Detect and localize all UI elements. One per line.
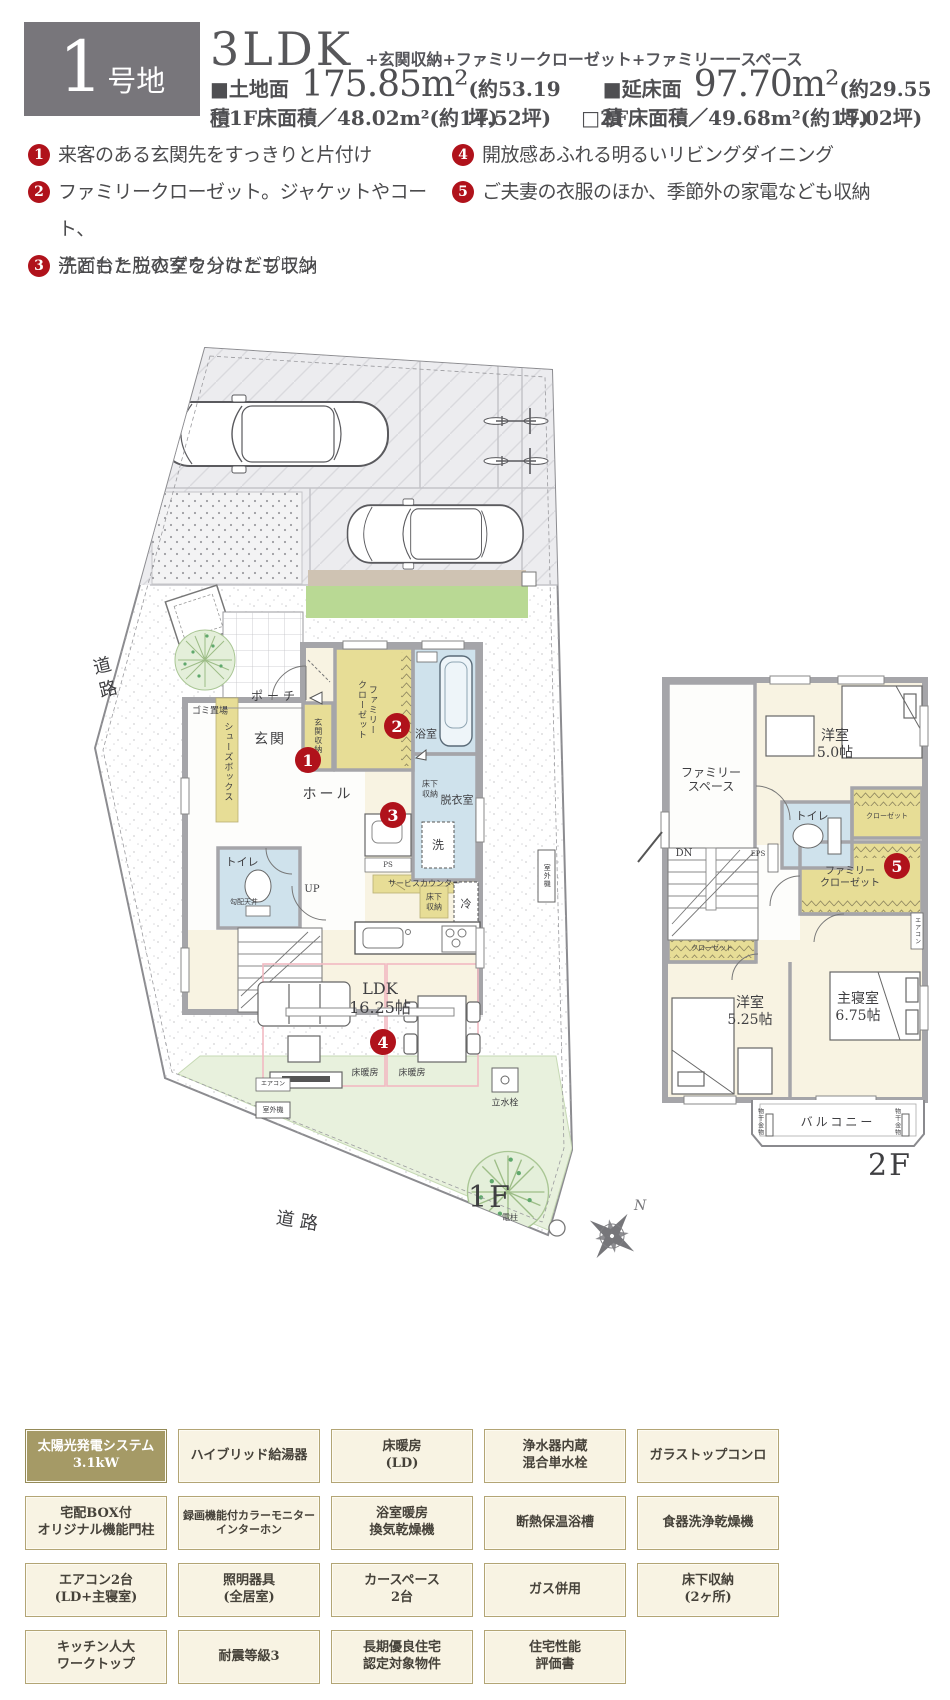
badge-floor-heating: 床暖房 (LD) <box>331 1429 473 1483</box>
feature-item-4: 4 開放感あふれる明るいリビングダイニング <box>452 137 950 174</box>
badge-dishwasher: 食器洗浄乾燥機 <box>637 1496 779 1550</box>
lot-suffix: 号地 <box>107 58 165 100</box>
label-sloped-ceiling: 勾配天井 <box>230 898 258 906</box>
lot-number: 1 <box>59 24 104 110</box>
label-family-closet-2f: ファミリー クローゼット <box>820 866 880 890</box>
label-family-space: ファミリー スペース <box>681 766 741 795</box>
floor-area-row: □1F床面積／48.02m²(約14.52坪) □2F床面積／49.68m²(約… <box>210 102 922 131</box>
side-table <box>288 1036 320 1062</box>
sofa <box>258 982 350 1026</box>
badge-delivery-box: 宅配BOX付 オリジナル機能門柱 <box>25 1496 167 1550</box>
lot-number-badge: 1 号地 <box>24 22 200 116</box>
label-floor-heating-2: 床暖房 <box>398 1069 425 1080</box>
plan-marker-1: 1 <box>295 747 321 773</box>
chair <box>404 1034 417 1054</box>
badge-lighting: 照明器具 (全居室) <box>178 1563 320 1617</box>
laundry-bracket <box>766 1114 773 1136</box>
equipment-badges: 太陽光発電システム 3.1kW ハイブリッド給湯器 床暖房 (LD) 浄水器内蔵… <box>25 1429 930 1684</box>
car-2 <box>348 499 524 569</box>
land-area-value: 175.85m² <box>301 64 468 105</box>
badge-glass-top-stove: ガラストップコンロ <box>637 1429 779 1483</box>
label-porch: ポーチ <box>251 689 299 703</box>
label-eps: EPS <box>751 850 766 858</box>
tree <box>175 630 235 690</box>
label-washer: 洗 <box>432 838 444 852</box>
label-fridge: 冷 <box>461 897 472 910</box>
feature-text-5: ご夫妻の衣服のほか、季節外の家電なども収納 <box>482 174 870 211</box>
badge-aircon-2units: エアコン2台 (LD+主寝室) <box>25 1563 167 1617</box>
feature-item-1: 1 来客のある玄関先をすっきりと片付け <box>28 137 448 174</box>
toilet-fixture-2f <box>793 824 823 848</box>
floor2-area: □2F床面積／49.68m²(約15.02坪) <box>581 102 922 131</box>
compass-north: N <box>633 1198 647 1214</box>
label-outdoor-unit-south: 室外機 <box>263 1106 284 1114</box>
floor-plan-1f: ポーチ ゴミ置場 玄関 シューズボックス 玄関収納 ファミリー クローゼット 浴… <box>60 330 580 1270</box>
feature-item-3: 3 洗面台と脱衣室を分けたプラン <box>28 248 448 285</box>
label-closet-b: クローゼット <box>691 944 733 952</box>
label-toilet-1f: トイレ <box>226 855 259 868</box>
badge-kitchen-worktop: キッチン人大 ワークトップ <box>25 1630 167 1684</box>
label-garbage: ゴミ置場 <box>192 707 228 718</box>
floor-plan-2f-drawing <box>600 620 950 1160</box>
plan-marker-3: 3 <box>380 802 406 828</box>
feature-text-4: 開放感あふれる明るいリビングダイニング <box>482 137 834 174</box>
label-underfloor-storage-2: 床下 収納 <box>426 892 442 911</box>
label-laundry-2: 物干金物 <box>893 1108 900 1136</box>
label-ps: PS <box>383 861 393 869</box>
laundry-bracket <box>902 1114 909 1136</box>
floor-plan-2f: ファミリー スペース 洋室 5.0帖 トイレ クローゼット EPS DN ファミ… <box>600 620 950 1160</box>
badge-water-purifier: 浄水器内蔵 混合単水栓 <box>484 1429 626 1483</box>
feature-number-2: 2 <box>28 181 50 203</box>
label-balcony: バルコニー <box>801 1115 876 1129</box>
label-water-tap: 立水栓 <box>491 1099 518 1110</box>
label-room-50: 洋室 5.0帖 <box>817 728 853 762</box>
badge-long-term-quality: 長期優良住宅 認定対象物件 <box>331 1630 473 1684</box>
badge-car-space: カースペース 2台 <box>331 1563 473 1617</box>
floor1-area: □1F床面積／48.02m²(約14.52坪) <box>210 102 551 131</box>
label-toilet-2f: トイレ <box>796 809 829 822</box>
dining-table <box>418 996 466 1062</box>
water-tap <box>492 1068 518 1092</box>
label-up: UP <box>304 884 319 896</box>
badge-hybrid-water-heater: ハイブリッド給湯器 <box>178 1429 320 1483</box>
label-hall: ホール <box>303 787 354 804</box>
label-outdoor-unit-east: 室外機 <box>543 864 551 888</box>
badge-underfloor-storage: 床下収納 (2ヶ所) <box>637 1563 779 1617</box>
desk-2 <box>738 1048 772 1094</box>
plan-marker-2: 2 <box>384 713 410 739</box>
feature-number-5: 5 <box>452 181 474 203</box>
desk-1 <box>766 716 814 756</box>
utility-pole <box>549 1220 565 1236</box>
label-service-counter: サービスカウンター <box>388 879 460 889</box>
compass: N <box>578 1196 654 1272</box>
label-shoe-box: シューズボックス <box>222 722 233 802</box>
label-closet-a: クローゼット <box>866 812 908 820</box>
total-floor-area-value: 97.70m² <box>694 64 839 105</box>
badge-intercom: 録画機能付カラーモニター インターホン <box>178 1496 320 1550</box>
label-floor-heating-1: 床暖房 <box>351 1069 378 1080</box>
hedge <box>306 586 528 618</box>
label-room-525: 洋室 5.25帖 <box>727 995 772 1029</box>
label-laundry-1: 物干金物 <box>756 1108 763 1136</box>
label-bathroom: 浴室 <box>415 727 437 740</box>
plan-marker-4: 4 <box>370 1029 396 1055</box>
badge-bath-dryer: 浴室暖房 換気乾燥機 <box>331 1496 473 1550</box>
badge-performance-report: 住宅性能 評価書 <box>484 1630 626 1684</box>
label-entrance: 玄関 <box>254 732 286 749</box>
car-1 <box>160 395 388 473</box>
feature-text-1: 来客のある玄関先をすっきりと片付け <box>58 137 372 174</box>
badge-seismic-grade: 耐震等級3 <box>178 1630 320 1684</box>
badge-solar: 太陽光発電システム 3.1kW <box>25 1429 167 1483</box>
label-ldk: LDK 16.25帖 <box>349 979 411 1017</box>
badge-insulated-tub: 断熱保温浴槽 <box>484 1496 626 1550</box>
label-family-closet-1f: ファミリー クローゼット <box>355 680 377 740</box>
kitchen-counter <box>355 922 480 954</box>
flyer-page: 1 号地 3LDK +玄関収納+ファミリークローゼット+ファミリーースペース ■… <box>0 0 950 1700</box>
badge-gas: ガス併用 <box>484 1563 626 1617</box>
tree <box>98 1076 167 1145</box>
stairs-2f <box>668 848 758 940</box>
feature-text-3: 洗面台と脱衣室を分けたプラン <box>58 248 317 285</box>
label-aircon-2f: エアコン <box>913 917 920 945</box>
feature-number-4: 4 <box>452 144 474 166</box>
plan-marker-5: 5 <box>884 853 910 879</box>
label-dressing-room: 脱衣室 <box>441 793 474 806</box>
floor-label-1f: 1F <box>468 1180 512 1215</box>
eps-shaft <box>768 844 778 872</box>
feature-number-3: 3 <box>28 255 50 277</box>
chair <box>467 1034 480 1054</box>
label-dn: DN <box>676 848 693 860</box>
chair <box>467 1002 480 1022</box>
label-aircon-1f: エアコン <box>261 1080 285 1087</box>
feature-number-1: 1 <box>28 144 50 166</box>
feature-item-5: 5 ご夫妻の衣服のほか、季節外の家電なども収納 <box>452 174 950 211</box>
label-master-bedroom: 主寝室 6.75帖 <box>835 991 880 1025</box>
tree <box>76 1151 124 1199</box>
garden-wall <box>308 570 526 588</box>
label-underfloor-storage-1: 床下 収納 <box>422 779 438 798</box>
